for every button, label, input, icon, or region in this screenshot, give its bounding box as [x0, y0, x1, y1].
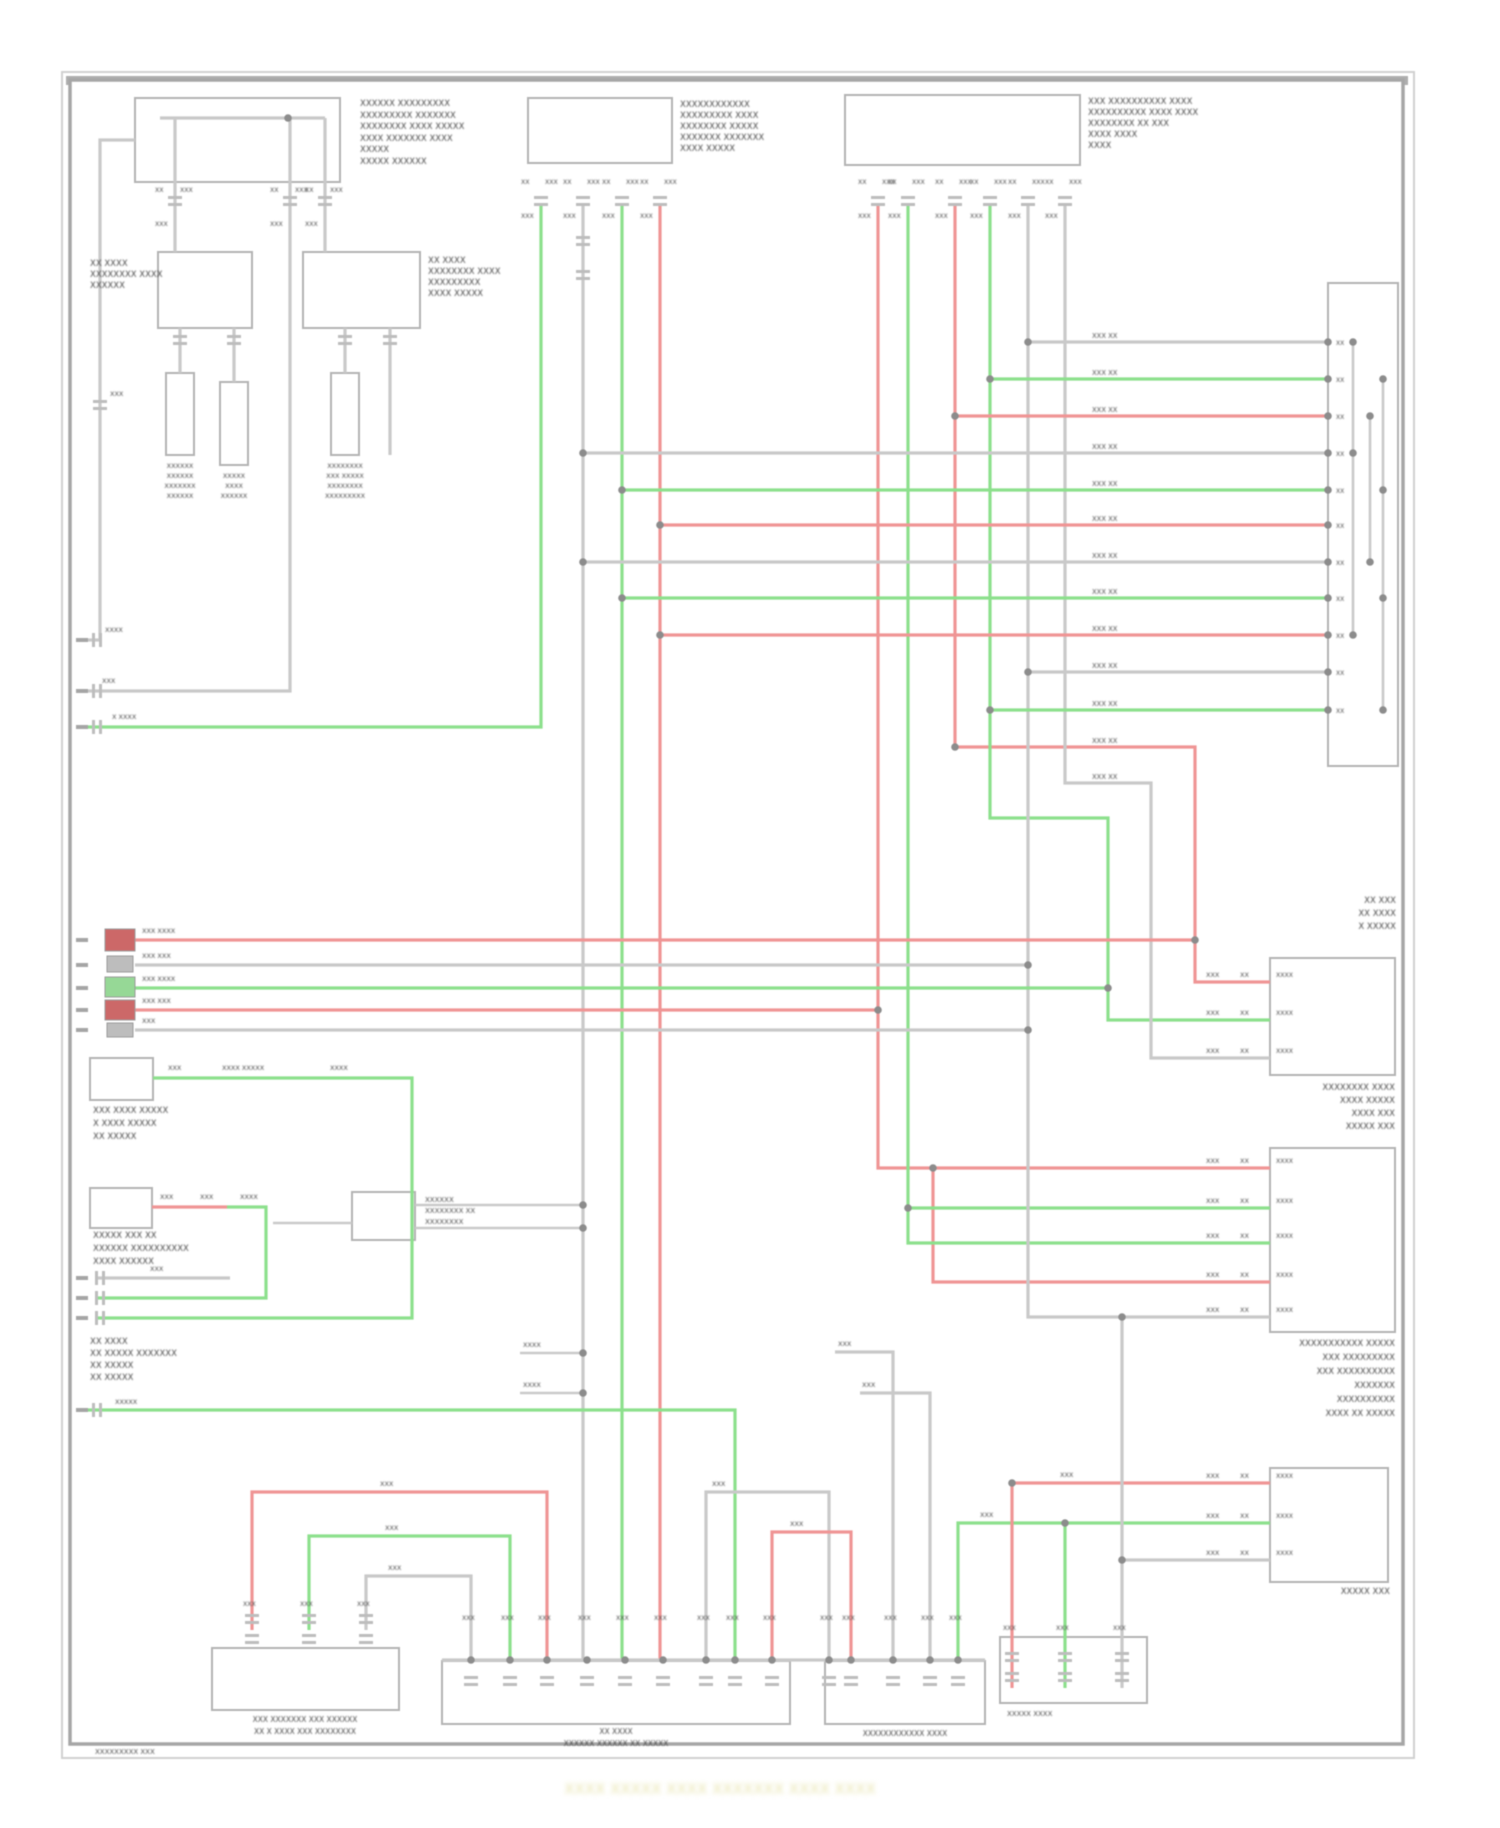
illegible-label: XX XXXX	[599, 1727, 632, 1736]
connector-icon	[359, 1634, 373, 1637]
illegible-label: XXX	[640, 213, 653, 220]
illegible-label: XXX XXXXX	[326, 472, 364, 480]
connector-icon	[1058, 196, 1072, 199]
illegible-label: XXX	[1113, 1625, 1126, 1632]
junction-dot	[1379, 594, 1387, 602]
illegible-label: XXXX	[1276, 972, 1294, 979]
illegible-label: XXXX XXXX	[1088, 130, 1137, 140]
illegible-label: XXXX	[105, 626, 123, 634]
connector-icon	[359, 1641, 373, 1644]
connector-icon	[951, 1683, 965, 1686]
connector-icon	[283, 203, 297, 206]
illegible-label: XXX XX	[1092, 700, 1118, 708]
illegible-label: XXXX XXXXX	[222, 1064, 265, 1072]
junction-dot	[1366, 558, 1374, 566]
connector-icon	[92, 684, 95, 698]
illegible-label: XXX XX	[1092, 737, 1118, 745]
connector-icon	[168, 203, 182, 206]
illegible-label: XX XXXX	[428, 256, 466, 266]
illegible-label: XXXX	[225, 482, 243, 490]
illegible-label: XXX	[180, 187, 193, 194]
junction-dot	[825, 1656, 833, 1664]
connector-icon	[1058, 1652, 1072, 1655]
illegible-label: XX	[1240, 1549, 1249, 1557]
illegible-label: XXXXXXXXXXX XXXXX	[1299, 1339, 1395, 1349]
illegible-label: XX XXXX	[1358, 909, 1396, 919]
bottom-right-box	[1000, 1637, 1147, 1703]
connector-icon	[822, 1683, 836, 1686]
illegible-label: XXX	[305, 221, 318, 228]
connector-icon	[245, 1614, 259, 1617]
junction-dot	[1366, 412, 1374, 420]
junction-dot	[702, 1656, 710, 1664]
illegible-label: XXX	[462, 1615, 475, 1622]
illegible-label: XX	[1336, 451, 1344, 458]
illegible-label: X XXXX	[112, 713, 137, 721]
illegible-label: XXXXXXXX XXXXX	[680, 122, 759, 132]
illegible-label: XXXX	[1276, 1307, 1294, 1314]
illegible-label: XXXXXXXX	[327, 482, 363, 490]
keyless-box-1	[90, 1058, 153, 1100]
connector-icon	[338, 335, 352, 338]
junction-dot	[889, 1656, 897, 1664]
illegible-label: XXXX XXXXX	[1340, 1096, 1395, 1106]
junction-dot	[579, 558, 587, 566]
illegible-label: XXXXX XXXX	[1007, 1710, 1053, 1718]
connector-icon	[1005, 1679, 1019, 1682]
connector-icon	[653, 196, 667, 199]
illegible-label: XXX	[1003, 1625, 1016, 1632]
illegible-label: XX X XXXX XXX XXXXXXXX	[254, 1727, 356, 1736]
illegible-label: XXXXXXXXX	[325, 492, 366, 500]
illegible-label: XXX	[330, 187, 343, 194]
junction-dot	[1324, 375, 1332, 383]
illegible-label: XX	[602, 179, 611, 186]
connector-icon	[173, 342, 187, 345]
illegible-label: XXXX	[1276, 1233, 1294, 1240]
illegible-label: X XXXXX	[1358, 922, 1396, 932]
illegible-label: X XXXX XXXXX	[93, 1119, 157, 1129]
connector-icon	[383, 335, 397, 338]
illegible-label: XXXXXXXXX	[428, 278, 481, 288]
junction-dot	[579, 1349, 587, 1357]
connector-icon	[576, 243, 590, 246]
illegible-label: XXX	[545, 179, 558, 186]
connector-icon	[383, 342, 397, 345]
wire-end-tick	[76, 1028, 88, 1032]
illegible-label: XXXX	[523, 1341, 541, 1349]
illegible-label: XXX	[994, 179, 1007, 186]
connector-icon	[653, 203, 667, 206]
illegible-label: XXX	[357, 1601, 370, 1608]
illegible-label: XXX XX	[1092, 552, 1118, 560]
connector-icon	[576, 196, 590, 199]
connector-icon	[901, 203, 915, 206]
illegible-label: XXX	[790, 1520, 804, 1528]
junction-dot	[618, 594, 626, 602]
connector-icon	[923, 1683, 937, 1686]
connector-icon	[844, 1683, 858, 1686]
junction-dot	[579, 1389, 587, 1397]
illegible-label: XXXXXX XXXXXXXXX	[360, 99, 450, 109]
wire-end-tick	[76, 1008, 88, 1012]
connector-icon	[1005, 1652, 1019, 1655]
illegible-label: XXXXXXXX	[425, 1218, 464, 1226]
illegible-label: XXX XXXXXXXXXX	[1317, 1367, 1396, 1377]
illegible-label: XXXXXXXXX XXXX	[680, 111, 759, 121]
illegible-label: XX	[1240, 1232, 1249, 1240]
illegible-label: XXX XXXX XXXXX	[93, 1106, 168, 1116]
illegible-label: XXX	[521, 213, 534, 220]
connector-icon	[615, 203, 629, 206]
wire-end-tick	[76, 689, 88, 693]
illegible-label: XX	[1336, 523, 1344, 530]
connector-icon	[102, 1311, 105, 1325]
illegible-label: XXXXXXXX XXXX	[1322, 1083, 1395, 1093]
junction-dot	[1324, 668, 1332, 676]
illegible-label: XX	[155, 187, 164, 194]
connector-icon	[948, 196, 962, 199]
illegible-label: XXX	[884, 1615, 897, 1622]
illegible-label: XXX	[858, 213, 871, 220]
connector-icon	[699, 1676, 713, 1679]
illegible-label: XXX XX	[1092, 773, 1118, 781]
illegible-label: XXX	[388, 1564, 402, 1572]
connector-icon	[1021, 203, 1035, 206]
illegible-label: XXX XXX	[142, 952, 171, 960]
joint-connector-3	[331, 373, 359, 455]
junction-dot	[1191, 936, 1199, 944]
illegible-label: XX	[970, 179, 979, 186]
junction-dot	[1008, 1479, 1016, 1487]
illegible-label: XXX XX	[1092, 406, 1118, 414]
connector-icon	[92, 720, 95, 734]
connector-icon	[822, 1676, 836, 1679]
illegible-label: XXX	[1206, 1197, 1220, 1205]
small-mid-box	[352, 1192, 415, 1240]
connector-icon	[338, 342, 352, 345]
illegible-label: XX	[305, 187, 314, 194]
connector-icon	[99, 1403, 102, 1417]
illegible-label: XXX	[380, 1480, 394, 1488]
illegible-label: XXX	[664, 179, 677, 186]
illegible-label: XXXX XXX	[1352, 1109, 1396, 1119]
connector-icon	[699, 1683, 713, 1686]
illegible-label: XX XXXXX	[90, 1373, 134, 1383]
illegible-label: XXXX	[1276, 1272, 1294, 1279]
illegible-label: XXXX	[1276, 1550, 1294, 1557]
junction-dot	[659, 1656, 667, 1664]
connector-box-right-3	[1270, 1468, 1388, 1582]
connector-icon	[1115, 1659, 1129, 1662]
junction-dot	[926, 1656, 934, 1664]
junction-dot	[1379, 706, 1387, 714]
connector-icon	[227, 335, 241, 338]
junction-dot	[1118, 1313, 1126, 1321]
junction-dot	[1349, 338, 1357, 346]
illegible-label: XXX XX	[1092, 662, 1118, 670]
illegible-label: XXXXXX	[90, 281, 125, 291]
connector-icon	[92, 633, 95, 647]
connector-icon	[576, 236, 590, 239]
illegible-label: XX	[1240, 1512, 1249, 1520]
module-box-top-center	[528, 98, 672, 163]
illegible-label: XXX XXXXXXX XXX XXXXXX	[253, 1715, 358, 1724]
illegible-label: XXXX	[240, 1193, 258, 1201]
illegible-label: XXX XX	[1092, 332, 1118, 340]
junction-dot	[1349, 449, 1357, 457]
illegible-label: XXX	[1206, 1306, 1220, 1314]
illegible-label: XXX	[155, 221, 168, 228]
junction-dot	[1324, 521, 1332, 529]
junction-dot	[1324, 486, 1332, 494]
junction-dot	[579, 1201, 587, 1209]
junction-dot	[1324, 412, 1332, 420]
illegible-label: XX	[1045, 179, 1054, 186]
illegible-label: XXX	[1206, 1472, 1220, 1480]
connector-icon	[618, 1676, 632, 1679]
wire-end-tick	[76, 1408, 88, 1412]
connector-icon	[1005, 1659, 1019, 1662]
illegible-label: XXX XX	[1092, 625, 1118, 633]
illegible-label: XXXXX	[223, 472, 246, 480]
junction-dot	[1104, 984, 1112, 992]
illegible-label: XXXXXX	[167, 472, 194, 480]
connector-icon	[168, 196, 182, 199]
illegible-label: XXX	[842, 1615, 855, 1622]
connector-icon	[534, 196, 548, 199]
connector-icon	[656, 1683, 670, 1686]
illegible-label: XXX	[200, 1193, 214, 1201]
illegible-label: XX	[1336, 377, 1344, 384]
joint-connector-1	[166, 373, 194, 455]
illegible-label: XXX XXXXXXXXX	[1322, 1353, 1395, 1363]
illegible-label: XXX	[1206, 1157, 1220, 1165]
junction-dot	[618, 486, 626, 494]
illegible-label: XX	[1336, 560, 1344, 567]
illegible-label: XX	[521, 179, 530, 186]
illegible-label: XXXXXXXX XXXX	[90, 270, 163, 280]
illegible-label: XXXX	[1276, 1473, 1294, 1480]
illegible-label: XXX	[1008, 213, 1021, 220]
connector-icon	[95, 1311, 98, 1325]
connector-icon	[99, 720, 102, 734]
junction-dot	[847, 1656, 855, 1664]
connector-icon	[93, 407, 107, 410]
illegible-label: XXX	[300, 1601, 313, 1608]
illegible-label: XXXXXXXX XX XXX	[1088, 119, 1169, 129]
illegible-label: XXX	[763, 1615, 776, 1622]
illegible-label: XXXXXXXX	[327, 462, 363, 470]
illegible-label: XX XXXXX	[93, 1132, 137, 1142]
illegible-label: XXXX	[1276, 1513, 1294, 1520]
wire-end-tick	[76, 986, 88, 990]
illegible-label: XX	[1336, 596, 1344, 603]
connector-icon	[1115, 1672, 1129, 1675]
joint-connector-2	[220, 382, 248, 465]
junction-dot	[579, 1224, 587, 1232]
connector-icon	[765, 1683, 779, 1686]
illegible-label: XX	[1240, 1306, 1249, 1314]
connector-icon	[948, 203, 962, 206]
illegible-label: XX	[1336, 340, 1344, 347]
connector-icon	[901, 196, 915, 199]
connector-stub	[105, 929, 135, 951]
illegible-label: XXX	[1206, 971, 1220, 979]
relay-box-right	[303, 252, 420, 328]
wiring-diagram-canvas: XXXXXX XXXXXXXXXXXXXXXXXX XXXXXXXXXXXXXX…	[0, 0, 1500, 1828]
illegible-label: XXX	[862, 1381, 876, 1389]
connector-icon	[576, 203, 590, 206]
connector-icon	[503, 1676, 517, 1679]
junction-dot	[1118, 1556, 1126, 1564]
junction-dot	[1024, 961, 1032, 969]
connector-icon	[92, 1403, 95, 1417]
connector-icon	[283, 196, 297, 199]
illegible-label: XX	[1008, 179, 1017, 186]
junction-dot	[1324, 631, 1332, 639]
illegible-label: XXX	[270, 221, 283, 228]
illegible-label: XXXX XXXXXXX XXXX	[360, 134, 453, 144]
illegible-label: XXXXXXXXXXXX	[680, 100, 750, 110]
connector-icon	[318, 203, 332, 206]
connector-icon	[1058, 1659, 1072, 1662]
junction-dot	[929, 1164, 937, 1172]
connector-icon	[1058, 1672, 1072, 1675]
illegible-label: XXXXX XXX XX	[93, 1231, 157, 1241]
illegible-label: XXX	[888, 213, 901, 220]
scanned-wiring-diagram-page: XXXXXX XXXXXXXXXXXXXXXXXX XXXXXXXXXXXXXX…	[0, 0, 1500, 1828]
illegible-label: XXX XXXX	[142, 975, 176, 983]
junction-dot	[579, 449, 587, 457]
junction-dot	[1024, 1026, 1032, 1034]
illegible-label: XXXX	[1088, 141, 1111, 151]
illegible-label: XXXX	[1276, 1198, 1294, 1205]
connector-icon	[1021, 196, 1035, 199]
connector-icon	[983, 196, 997, 199]
connector-icon	[728, 1683, 742, 1686]
illegible-label: XXX	[1060, 1471, 1074, 1479]
connector-icon	[95, 1271, 98, 1285]
junction-dot	[583, 1656, 591, 1664]
illegible-label: XX	[935, 179, 944, 186]
module-box-top-right	[845, 95, 1080, 165]
connector-icon	[99, 684, 102, 698]
junction-dot	[731, 1656, 739, 1664]
connector-icon	[99, 633, 102, 647]
illegible-label: XXX XX	[1092, 588, 1118, 596]
wire-end-tick	[76, 938, 88, 942]
illegible-label: XX	[563, 179, 572, 186]
illegible-label: XXX	[587, 179, 600, 186]
illegible-label: XXX	[102, 677, 116, 685]
illegible-label: XXX	[385, 1524, 399, 1532]
illegible-label: XXX	[578, 1615, 591, 1622]
connector-box-right-2	[1270, 1148, 1395, 1332]
connector-icon	[844, 1676, 858, 1679]
connector-icon	[576, 270, 590, 273]
illegible-label: XX	[1336, 414, 1344, 421]
illegible-label: XXXXXXXXXX	[1337, 1395, 1395, 1405]
junction-dot	[986, 375, 994, 383]
connector-icon	[359, 1621, 373, 1624]
illegible-label: XXXX	[523, 1381, 541, 1389]
illegible-label: XXX	[980, 1511, 994, 1519]
connector-icon	[359, 1614, 373, 1617]
illegible-label: XXXXXXXXX XXXXXXX	[360, 111, 456, 121]
wire-end-tick	[76, 1276, 88, 1280]
illegible-label: XXX	[820, 1615, 833, 1622]
connector-icon	[245, 1634, 259, 1637]
connector-icon	[656, 1676, 670, 1679]
connector-icon	[923, 1676, 937, 1679]
connector-icon	[464, 1676, 478, 1679]
illegible-label: XXXX	[1276, 1048, 1294, 1055]
illegible-label: XXX	[912, 179, 925, 186]
illegible-label: XXXXXXXX XX	[425, 1207, 475, 1215]
illegible-label: XXXXXX	[167, 492, 194, 500]
illegible-label: XXX XX	[1092, 443, 1118, 451]
illegible-label: XX XXXXX XXXXXXX	[90, 1349, 177, 1359]
illegible-label: XXXX XXXXX	[428, 289, 483, 299]
bottom-center-box-2	[825, 1661, 985, 1724]
connector-icon	[464, 1683, 478, 1686]
illegible-label: XXXXXXX XXXXXXX	[680, 133, 764, 143]
illegible-label: XXX	[712, 1480, 726, 1488]
illegible-label: XXX	[1206, 1232, 1220, 1240]
junction-dot	[904, 1204, 912, 1212]
illegible-label: XX	[1240, 1047, 1249, 1055]
connector-icon	[1058, 1679, 1072, 1682]
illegible-label: XXXXXXXX XXXX XXXXX	[360, 122, 465, 132]
illegible-label: XXX	[838, 1340, 852, 1348]
illegible-label: XXXXX	[360, 145, 389, 155]
connector-icon	[618, 1683, 632, 1686]
illegible-label: XX	[1240, 1197, 1249, 1205]
connector-icon	[580, 1676, 594, 1679]
illegible-label: XX	[1240, 1472, 1249, 1480]
junction-dot	[1324, 558, 1332, 566]
illegible-label: XXX	[563, 213, 576, 220]
wire-end-tick	[76, 1316, 88, 1320]
illegible-label: XXXX XX XXXXX	[1326, 1409, 1396, 1419]
illegible-label: XX	[1240, 1009, 1249, 1017]
bottom-center-box	[442, 1661, 790, 1724]
connector-icon	[534, 203, 548, 206]
junction-dot	[1324, 594, 1332, 602]
illegible-label: XXXXX XXX	[1341, 1587, 1390, 1597]
illegible-label: XXX XX	[1092, 369, 1118, 377]
illegible-label: XXX	[150, 1265, 164, 1273]
junction-dot	[284, 114, 292, 122]
illegible-label: XXXXX	[115, 1398, 138, 1406]
junction-dot	[1324, 338, 1332, 346]
wire-end-tick	[76, 725, 88, 729]
illegible-label: XXX	[142, 1017, 156, 1025]
junction-dot	[954, 1656, 962, 1664]
connector-icon	[886, 1676, 900, 1679]
illegible-label: XXX	[538, 1615, 551, 1622]
illegible-label: XXXXXX XXXXXXXXXX	[93, 1244, 189, 1254]
illegible-label: XXXXXXX	[164, 482, 196, 490]
connector-stub	[105, 977, 135, 997]
connector-icon	[95, 1291, 98, 1305]
connector-icon	[1005, 1672, 1019, 1675]
connector-icon	[1115, 1652, 1129, 1655]
illegible-label: XXXXXXXX XXXX	[428, 267, 501, 277]
illegible-label: XXX	[970, 213, 983, 220]
illegible-label: XXX XX	[1092, 515, 1118, 523]
